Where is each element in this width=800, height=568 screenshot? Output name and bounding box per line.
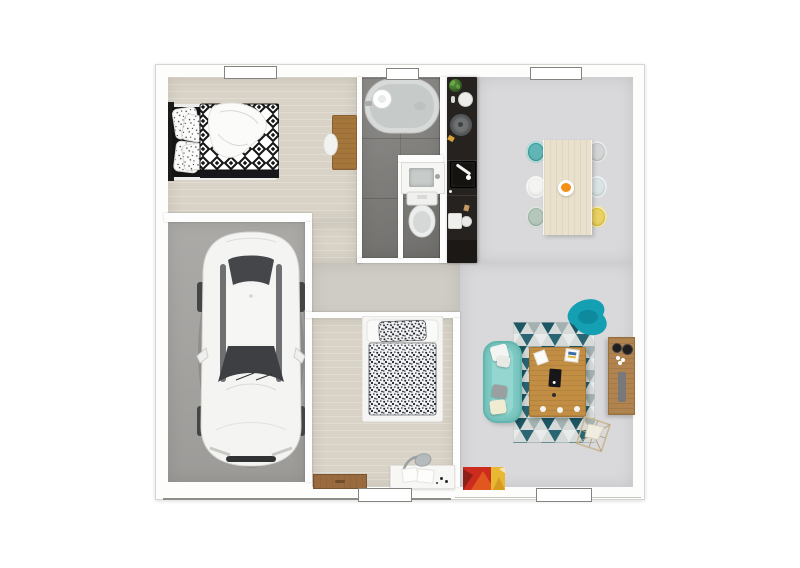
interior-wall-bedroom2-right (453, 318, 460, 487)
desk-papers (416, 468, 434, 484)
coffee-cup (461, 216, 472, 227)
kitchen-faucet-head (466, 175, 471, 180)
sink-basin (409, 168, 434, 187)
tablet (548, 369, 561, 388)
car-rear-window (228, 256, 274, 286)
window-dining (530, 67, 582, 80)
table-cup (557, 407, 563, 413)
car (196, 230, 306, 470)
table-cup (540, 406, 546, 412)
window-bedroom1 (224, 66, 277, 79)
wire-basket (572, 412, 614, 458)
interior-wall-bedroom1-garage (164, 213, 312, 222)
throw-pillow-cream (489, 399, 507, 415)
armchair (566, 297, 610, 341)
tv-cabinet (608, 337, 635, 415)
bench-handle (335, 480, 345, 483)
bedroom2-bench (313, 474, 367, 489)
floor-plan-canvas (0, 0, 800, 568)
speaker (612, 343, 622, 353)
window-bedroom2 (358, 488, 412, 502)
coffee-machine (448, 213, 462, 229)
single-bed (362, 316, 443, 422)
coffee-table-paper (564, 348, 580, 363)
kitchen-plant (449, 79, 462, 92)
window-bathroom (386, 68, 419, 80)
sink-vanity (401, 162, 445, 194)
bed-pillow (379, 320, 427, 342)
bathtub (364, 78, 440, 136)
table-cup (574, 406, 580, 412)
throw-pillow-gray (491, 384, 508, 399)
sink-faucet (435, 174, 440, 179)
double-bed (168, 100, 279, 183)
bedroom1-chair (323, 133, 338, 156)
abstract-painting (463, 467, 505, 490)
corridor-floor (312, 222, 357, 263)
soundbar (618, 372, 626, 402)
fruit (561, 183, 571, 192)
bed-duvet (369, 343, 436, 415)
kettle-handle (451, 96, 455, 103)
kitchen-hob (450, 114, 472, 136)
interior-wall-garage-right (305, 222, 312, 482)
interior-wall-bathroom-left (357, 77, 362, 263)
speaker (622, 344, 633, 355)
tub-faucet (365, 101, 372, 106)
toilet (404, 191, 440, 239)
kitchen-sink (450, 161, 476, 188)
throw-pillow-white (496, 355, 511, 368)
window-living (536, 488, 592, 502)
fruit-plate (558, 180, 574, 196)
hallway-floor (312, 263, 460, 318)
kitchen-kettle (458, 92, 473, 107)
